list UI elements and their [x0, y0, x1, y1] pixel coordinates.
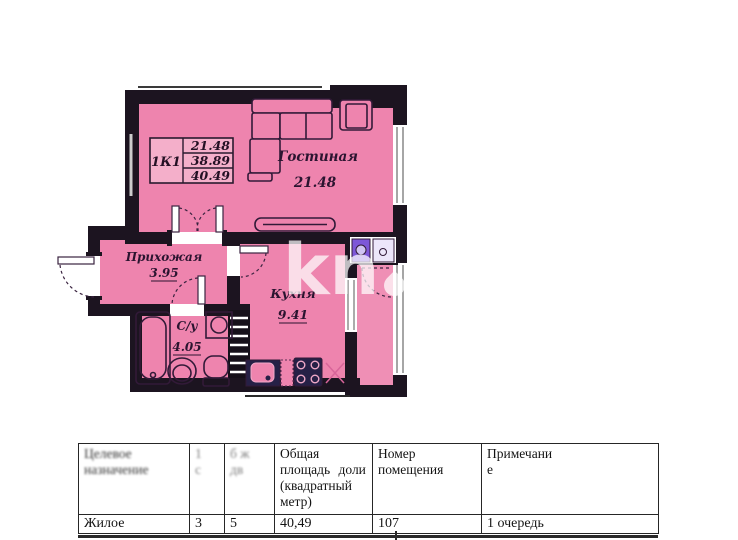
- header-note: Примечани е: [482, 444, 659, 515]
- kitchen-sink-icon: [246, 360, 280, 386]
- cell-col3: 5: [225, 515, 275, 534]
- armchair-icon: [340, 100, 372, 130]
- header-room-number: Номер помещения: [373, 444, 482, 515]
- next-row-partial-divider: [395, 531, 397, 540]
- scanned-floorplan-document: 1К1 21.48 38.89 40.49 Гостиная 21.48 При…: [0, 0, 738, 540]
- living-room-label: Гостиная: [277, 149, 358, 165]
- table-header-row: Целевое назначение 1 с б ж дв Общая площ…: [79, 444, 659, 515]
- header-col2-text: 1 с: [195, 446, 202, 477]
- share-info-table: Целевое назначение 1 с б ж дв Общая площ…: [78, 443, 659, 534]
- cell-col2: 3: [190, 515, 225, 534]
- cell-purpose: Жилое: [79, 515, 190, 534]
- table-row: Жилое 3 5 40,49 107 1 очередь: [79, 515, 659, 534]
- watermark-kz-text: kz: [410, 230, 497, 310]
- header-col2: 1 с: [190, 444, 225, 515]
- header-col3: б ж дв: [225, 444, 275, 515]
- hallway-area: 3.95: [149, 266, 178, 280]
- cell-room-number: 107: [373, 515, 482, 534]
- hallway-label: Прихожая: [125, 250, 203, 264]
- header-purpose: Целевое назначение: [79, 444, 190, 515]
- stamp-unit-label: 1К1: [151, 155, 181, 170]
- header-total-area: Общая площадь доли (квадратный метр): [275, 444, 373, 515]
- bathroom-area: 4.05: [172, 340, 201, 354]
- stamp-area-total: 21.48: [190, 138, 230, 153]
- living-room-area: 21.48: [293, 175, 337, 191]
- kitchen-counter-gap: [281, 360, 293, 386]
- unit-stamp: 1К1 21.48 38.89 40.49: [150, 138, 233, 183]
- header-col3-text: б ж дв: [230, 446, 250, 477]
- cell-total-area: 40,49: [275, 515, 373, 534]
- kn-kz-watermark: kn kz: [283, 230, 498, 310]
- bathroom-label: С/у: [176, 319, 198, 333]
- stamp-area-full: 40.49: [191, 168, 230, 183]
- cell-note: 1 очередь: [482, 515, 659, 534]
- header-purpose-text: Целевое назначение: [84, 446, 148, 477]
- watermark-drop-icon: [380, 270, 410, 300]
- stamp-area-living: 38.89: [191, 153, 230, 168]
- next-row-partial-border: [78, 535, 658, 538]
- stove-icon: [294, 358, 322, 386]
- watermark-kn-text: kn: [283, 230, 379, 310]
